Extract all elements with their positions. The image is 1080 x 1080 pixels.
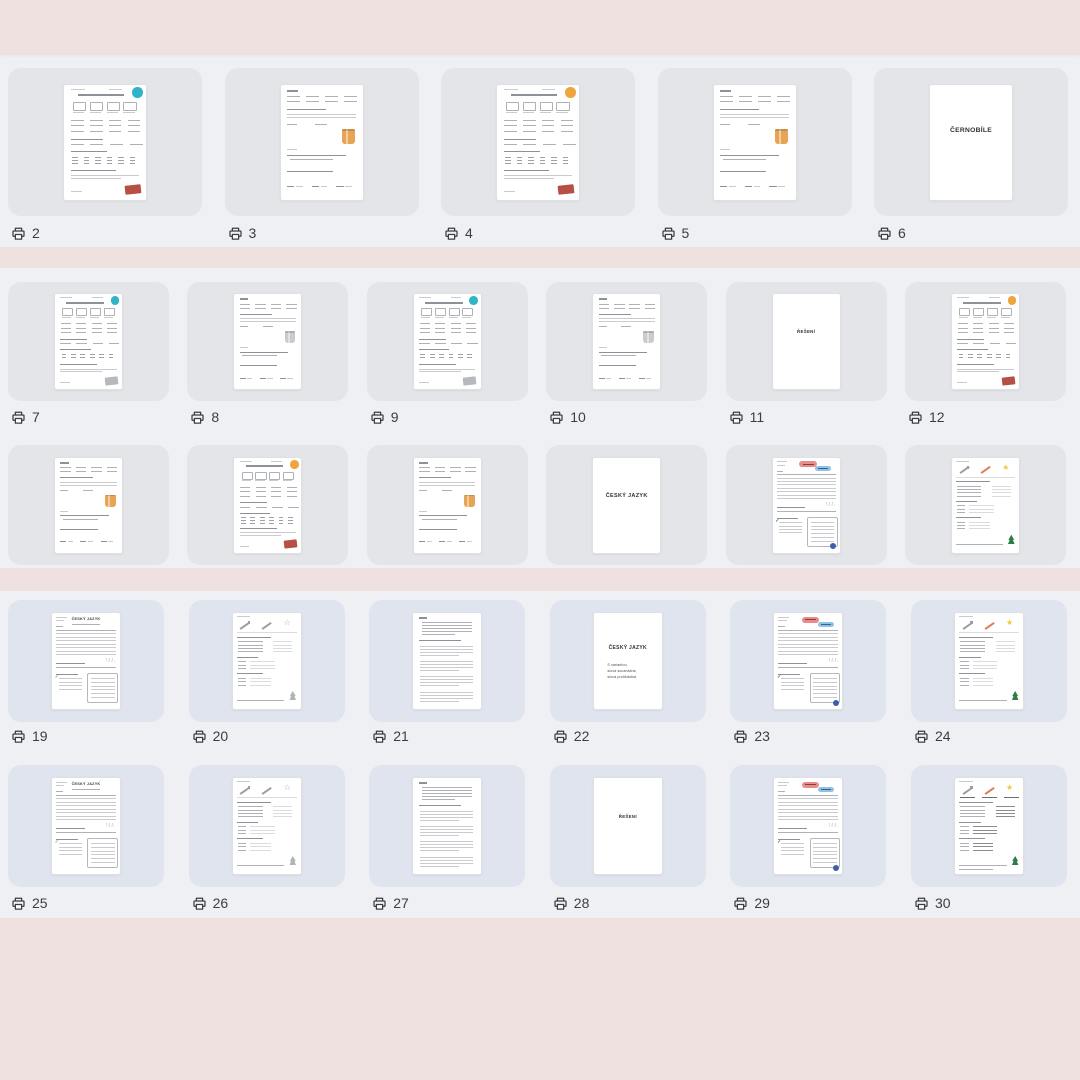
page-label: 6 xyxy=(877,224,906,242)
doodle-graphic xyxy=(106,823,115,828)
cover-title: ŘEŠENÍ xyxy=(594,814,662,819)
badge-icon xyxy=(565,87,576,98)
blue-dot-graphic xyxy=(833,865,839,871)
stamp-graphic xyxy=(1001,376,1014,385)
page-label: 12 xyxy=(908,408,945,426)
page-thumbnail: ČESKÝ JAZYK xyxy=(593,458,660,553)
stamp-graphic xyxy=(284,540,297,549)
answer-box xyxy=(87,838,118,868)
page-number: 24 xyxy=(935,728,951,744)
page-thumbnail: ☆ xyxy=(233,778,301,874)
printer-icon[interactable] xyxy=(11,729,26,744)
page-label: 22 xyxy=(553,727,590,745)
printer-icon[interactable] xyxy=(661,226,676,241)
page-number: 29 xyxy=(754,895,770,911)
page-number: 25 xyxy=(32,895,48,911)
printer-icon[interactable] xyxy=(444,226,459,241)
cover-subtitle-line: slova souznačná, xyxy=(607,669,636,673)
rake-icon xyxy=(959,465,970,474)
page-number: 30 xyxy=(935,895,951,911)
page-card[interactable]: ČESKÝ JAZYK✓ xyxy=(8,600,164,722)
stamp-graphic xyxy=(463,376,476,385)
page-number: 12 xyxy=(929,409,945,425)
paper-bag-graphic xyxy=(342,129,355,144)
page-label: 24 xyxy=(914,727,951,745)
page-label: 11 xyxy=(729,408,765,426)
page-thumbnail: ČESKÝ JAZYK✓ xyxy=(52,778,120,874)
cover-title: ČESKÝ JAZYK xyxy=(593,493,660,499)
stamp-graphic xyxy=(124,184,140,195)
page-number: 10 xyxy=(570,409,586,425)
printer-icon[interactable] xyxy=(11,410,26,425)
answer-box xyxy=(810,673,841,703)
page-label: 3 xyxy=(228,224,257,242)
printer-icon[interactable] xyxy=(553,896,568,911)
page-card[interactable] xyxy=(905,282,1066,401)
page-card[interactable] xyxy=(369,600,525,722)
rake-icon xyxy=(239,621,250,630)
doodle-graphic xyxy=(829,658,838,663)
page-label: 2 xyxy=(11,224,40,242)
cover-subtitle-line: slova protikladná xyxy=(607,675,636,679)
rake-icon xyxy=(962,621,973,630)
page-label: 8 xyxy=(190,408,219,426)
stamp-graphic xyxy=(104,376,117,385)
page-card[interactable] xyxy=(546,282,707,401)
worksheet-title: ČESKÝ JAZYK xyxy=(52,617,120,621)
page-number: 5 xyxy=(682,225,690,241)
page-number: 21 xyxy=(393,728,409,744)
page-thumbnail xyxy=(593,294,660,389)
page-number: 19 xyxy=(32,728,48,744)
page-thumbnail: ★ xyxy=(952,458,1019,553)
page-number: 27 xyxy=(393,895,409,911)
page-card[interactable] xyxy=(225,68,419,216)
page-card[interactable]: ✓ xyxy=(730,765,886,887)
page-card[interactable] xyxy=(367,445,528,565)
page-number: 22 xyxy=(574,728,590,744)
page-card[interactable]: ☆ xyxy=(189,765,345,887)
page-number: 8 xyxy=(211,409,219,425)
star-icon: ☆ xyxy=(284,784,291,792)
cover-title: ČERNOBÍLE xyxy=(930,127,1012,134)
page-thumbnail: ★ xyxy=(955,778,1023,874)
page-thumbnail: ★ xyxy=(955,613,1023,709)
page-thumbnail xyxy=(234,294,301,389)
blue-dot-graphic xyxy=(830,543,836,549)
blue-oval-label xyxy=(815,466,830,471)
answer-box xyxy=(810,838,841,868)
page-card[interactable]: ŘEŠENÍ xyxy=(550,765,706,887)
page-thumbnail: ☆ xyxy=(233,613,301,709)
page-thumbnail: ✓ xyxy=(774,778,842,874)
paper-bag-graphic xyxy=(105,495,116,507)
tree-icon xyxy=(289,856,296,865)
page-card[interactable]: ★ xyxy=(911,765,1067,887)
star-icon: ☆ xyxy=(284,619,291,627)
answer-box xyxy=(87,673,118,703)
printer-icon[interactable] xyxy=(11,896,26,911)
page-card[interactable]: ČESKÝ JAZYK xyxy=(546,445,707,565)
page-thumbnail xyxy=(55,458,122,553)
page-thumbnail: ŘEŠENÍ xyxy=(773,294,840,389)
red-oval-label xyxy=(802,617,820,623)
page-number: 20 xyxy=(213,728,229,744)
page-card[interactable] xyxy=(441,68,635,216)
page-label: 20 xyxy=(192,727,229,745)
printer-icon[interactable] xyxy=(228,226,243,241)
badge-icon xyxy=(290,460,299,469)
cover-title: ŘEŠENÍ xyxy=(773,329,840,334)
blue-oval-label xyxy=(818,787,834,792)
checkmark-icon: ✓ xyxy=(55,841,59,846)
red-oval-label xyxy=(799,461,816,467)
page-thumbnail xyxy=(714,85,796,200)
page-card[interactable]: ✓ xyxy=(730,600,886,722)
page-card[interactable]: ČESKÝ JAZYK✓ xyxy=(8,765,164,887)
checkmark-icon: ✓ xyxy=(777,841,781,846)
page-label: 27 xyxy=(372,894,409,912)
pencil-icon xyxy=(980,465,991,474)
printer-icon[interactable] xyxy=(908,410,923,425)
cover-title: ČESKÝ JAZYK xyxy=(594,645,662,651)
page-label: 29 xyxy=(733,894,770,912)
tree-icon xyxy=(1008,535,1015,544)
printer-icon[interactable] xyxy=(914,729,929,744)
page-number: 3 xyxy=(249,225,257,241)
page-label: 4 xyxy=(444,224,473,242)
badge-icon xyxy=(132,87,143,98)
page-card[interactable] xyxy=(658,68,852,216)
printer-icon[interactable] xyxy=(914,896,929,911)
paper-bag-graphic xyxy=(775,129,788,144)
page-thumbnail xyxy=(413,778,481,874)
printer-icon[interactable] xyxy=(192,729,207,744)
star-icon: ★ xyxy=(1002,464,1009,472)
rake-icon xyxy=(962,786,973,795)
page-card[interactable] xyxy=(8,445,169,565)
page-label: 26 xyxy=(192,894,229,912)
star-icon: ★ xyxy=(1006,619,1013,627)
page-label: 10 xyxy=(549,408,586,426)
red-oval-label xyxy=(802,782,820,788)
badge-icon xyxy=(111,296,120,305)
page-label: 5 xyxy=(661,224,690,242)
printer-icon[interactable] xyxy=(877,226,892,241)
page-card[interactable]: ☆ xyxy=(189,600,345,722)
page-card[interactable] xyxy=(187,282,348,401)
page-thumbnail: ✓ xyxy=(774,613,842,709)
page-card[interactable]: ČERNOBÍLE xyxy=(874,68,1068,216)
badge-icon xyxy=(469,296,478,305)
page-number: 23 xyxy=(754,728,770,744)
page-label: 19 xyxy=(11,727,48,745)
printer-icon[interactable] xyxy=(11,226,26,241)
worksheet-title: ČESKÝ JAZYK xyxy=(52,782,120,786)
tree-icon xyxy=(1011,691,1018,700)
page-card[interactable]: ŘEŠENÍ xyxy=(726,282,887,401)
page-number: 26 xyxy=(213,895,229,911)
pencil-icon xyxy=(261,786,272,795)
rake-icon xyxy=(239,786,250,795)
page-label: 9 xyxy=(370,408,399,426)
printer-icon[interactable] xyxy=(370,410,385,425)
page-card[interactable]: ★ xyxy=(911,600,1067,722)
pencil-icon xyxy=(261,621,272,630)
page-thumbnail xyxy=(281,85,363,200)
doodle-graphic xyxy=(829,823,838,828)
blue-oval-label xyxy=(818,622,834,627)
tree-icon xyxy=(289,691,296,700)
printer-icon[interactable] xyxy=(729,410,744,425)
page-number: 6 xyxy=(898,225,906,241)
page-number: 28 xyxy=(574,895,590,911)
page-card[interactable] xyxy=(8,282,169,401)
page-card[interactable]: ČESKÝ JAZYKS variantouslova souznačná,sl… xyxy=(550,600,706,722)
page-number: 2 xyxy=(32,225,40,241)
page-label: 28 xyxy=(553,894,590,912)
checkmark-icon: ✓ xyxy=(55,676,59,681)
page-label: 23 xyxy=(733,727,770,745)
page-thumbnail xyxy=(414,294,481,389)
page-thumbnail: ČESKÝ JAZYK✓ xyxy=(52,613,120,709)
page-label: 21 xyxy=(372,727,409,745)
pencil-icon xyxy=(984,621,995,630)
star-icon: ★ xyxy=(1006,784,1013,792)
page-thumbnail xyxy=(64,85,146,200)
page-label: 25 xyxy=(11,894,48,912)
checkmark-icon: ✓ xyxy=(775,520,779,525)
printer-icon[interactable] xyxy=(192,896,207,911)
doodle-graphic xyxy=(826,502,835,507)
page-number: 11 xyxy=(750,409,765,425)
page-thumbnail xyxy=(952,294,1019,389)
page-thumbnail xyxy=(234,458,301,553)
page-label: 30 xyxy=(914,894,951,912)
stamp-graphic xyxy=(557,184,573,195)
page-thumbnail xyxy=(413,613,481,709)
page-number: 7 xyxy=(32,409,40,425)
cover-subtitle-line: S variantou xyxy=(607,663,626,667)
printer-icon[interactable] xyxy=(733,729,748,744)
printer-icon[interactable] xyxy=(190,410,205,425)
printer-icon[interactable] xyxy=(553,729,568,744)
tree-icon xyxy=(1011,856,1018,865)
checkmark-icon: ✓ xyxy=(777,676,781,681)
page-number: 4 xyxy=(465,225,473,241)
page-thumbnail: ŘEŠENÍ xyxy=(594,778,662,874)
paper-bag-graphic xyxy=(643,331,654,343)
page-thumbnail xyxy=(55,294,122,389)
page-thumbnail: ČESKÝ JAZYKS variantouslova souznačná,sl… xyxy=(594,613,662,709)
printer-icon[interactable] xyxy=(733,896,748,911)
page-card[interactable] xyxy=(8,68,202,216)
page-card[interactable]: ★ xyxy=(905,445,1066,565)
printer-icon[interactable] xyxy=(549,410,564,425)
page-number: 9 xyxy=(391,409,399,425)
badge-icon xyxy=(1008,296,1017,305)
page-thumbnail: ČERNOBÍLE xyxy=(930,85,1012,200)
pages-grid: 2345ČERNOBÍLE678910ŘEŠENÍ1112ČESKÝ JAZYK… xyxy=(0,0,1080,1080)
page-card[interactable] xyxy=(369,765,525,887)
page-card[interactable] xyxy=(187,445,348,565)
page-card[interactable] xyxy=(367,282,528,401)
page-thumbnail: ✓ xyxy=(773,458,840,553)
thumbnail-grid-view: 2345ČERNOBÍLE678910ŘEŠENÍ1112ČESKÝ JAZYK… xyxy=(0,0,1080,1080)
printer-icon[interactable] xyxy=(372,896,387,911)
page-label: 7 xyxy=(11,408,40,426)
page-thumbnail xyxy=(497,85,579,200)
printer-icon[interactable] xyxy=(372,729,387,744)
blue-dot-graphic xyxy=(833,700,839,706)
pencil-icon xyxy=(984,786,995,795)
doodle-graphic xyxy=(106,658,115,663)
paper-bag-graphic xyxy=(464,495,475,507)
page-card[interactable]: ✓ xyxy=(726,445,887,565)
page-thumbnail xyxy=(414,458,481,553)
paper-bag-graphic xyxy=(285,331,296,343)
